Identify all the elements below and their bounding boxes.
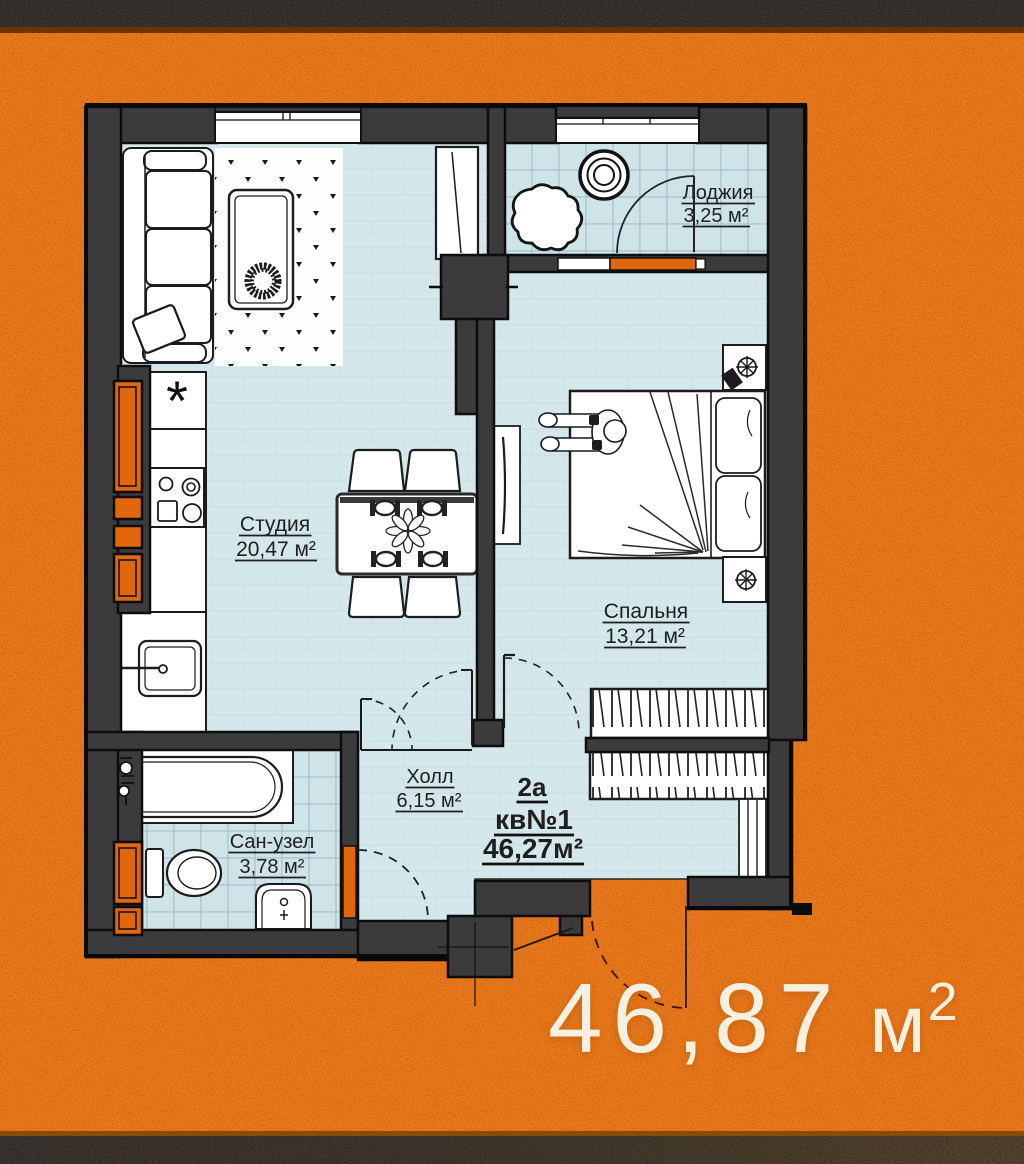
svg-text:Спальня: Спальня (604, 600, 688, 623)
svg-text:кв№1: кв№1 (495, 804, 573, 835)
svg-text:13,21 м²: 13,21 м² (605, 625, 685, 648)
svg-text:46,87м2: 46,87м2 (548, 963, 968, 1073)
svg-text:3,25 м²: 3,25 м² (684, 205, 749, 227)
svg-text:Лоджия: Лоджия (683, 182, 754, 204)
svg-text:Студия: Студия (240, 513, 310, 536)
svg-text:Сан-узел: Сан-узел (230, 831, 315, 853)
svg-text:*: * (166, 369, 188, 432)
svg-text:2а: 2а (518, 772, 547, 802)
svg-text:3,78 м²: 3,78 м² (240, 856, 305, 878)
svg-text:46,27м²: 46,27м² (483, 833, 583, 864)
svg-text:Холл: Холл (406, 766, 453, 788)
svg-text:6,15 м²: 6,15 м² (397, 790, 462, 812)
svg-text:20,47 м²: 20,47 м² (236, 538, 316, 561)
